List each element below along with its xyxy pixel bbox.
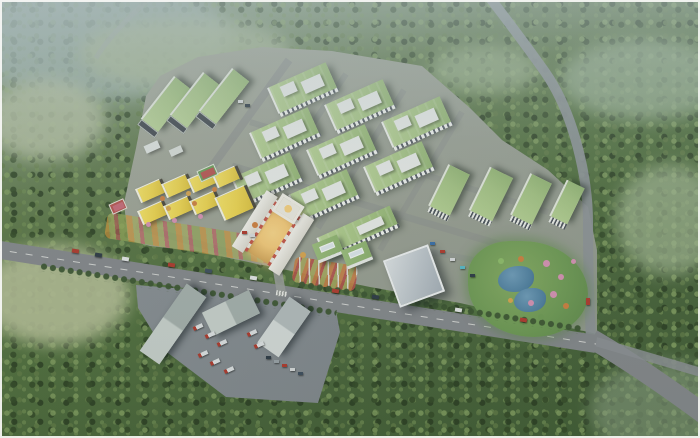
autumn-tree (518, 256, 524, 262)
autumn-tree (300, 252, 306, 258)
roof-penthouse (396, 152, 420, 172)
court-surface (112, 202, 124, 212)
autumn-tree (563, 303, 569, 309)
roof-penthouse (262, 126, 280, 142)
blossom-tree (172, 218, 177, 223)
blossom-tree (146, 222, 151, 227)
autumn-tree (192, 201, 197, 206)
car (440, 250, 445, 253)
roof-penthouse (394, 115, 412, 131)
car-on-road (586, 298, 590, 305)
car (290, 368, 295, 371)
aerial-rendering (0, 0, 700, 438)
park-tree (498, 258, 504, 264)
roof-penthouse (282, 118, 306, 138)
car (250, 234, 255, 237)
roof-penthouse (319, 143, 337, 159)
car (470, 274, 475, 277)
roof-penthouse (414, 107, 438, 127)
road-southeast (592, 339, 700, 420)
autumn-tree (166, 206, 171, 211)
forest-road-top-left (96, 0, 152, 58)
roof-penthouse (280, 81, 298, 97)
blossom-tree (198, 214, 203, 219)
roof-penthouse (300, 73, 324, 93)
car (245, 104, 250, 107)
park-tree (538, 314, 544, 320)
blossom-tree (558, 274, 564, 280)
autumn-tree (212, 187, 217, 192)
autumn-tree (508, 298, 513, 303)
car (238, 100, 243, 103)
autumn-tree (160, 196, 165, 201)
car (282, 364, 287, 367)
blossom-tree (543, 260, 550, 267)
road-network (0, 0, 700, 438)
roof-penthouse (339, 135, 363, 155)
roof-penthouse (301, 188, 319, 204)
roof-penthouse (357, 90, 381, 110)
car (298, 372, 303, 375)
roof-penthouse (321, 180, 345, 200)
car (242, 231, 247, 234)
roof-penthouse (356, 216, 384, 235)
car (450, 258, 455, 261)
blossom-tree (571, 259, 576, 264)
car (266, 356, 271, 359)
autumn-tree (186, 191, 191, 196)
roof-penthouse (337, 98, 355, 114)
car (460, 266, 465, 269)
roof-penthouse (264, 163, 288, 183)
roof-penthouse (376, 160, 394, 176)
car (430, 242, 435, 245)
car (274, 360, 279, 363)
blossom-tree (550, 291, 557, 298)
autumn-tree (252, 222, 258, 228)
blossom-tree (528, 300, 534, 306)
